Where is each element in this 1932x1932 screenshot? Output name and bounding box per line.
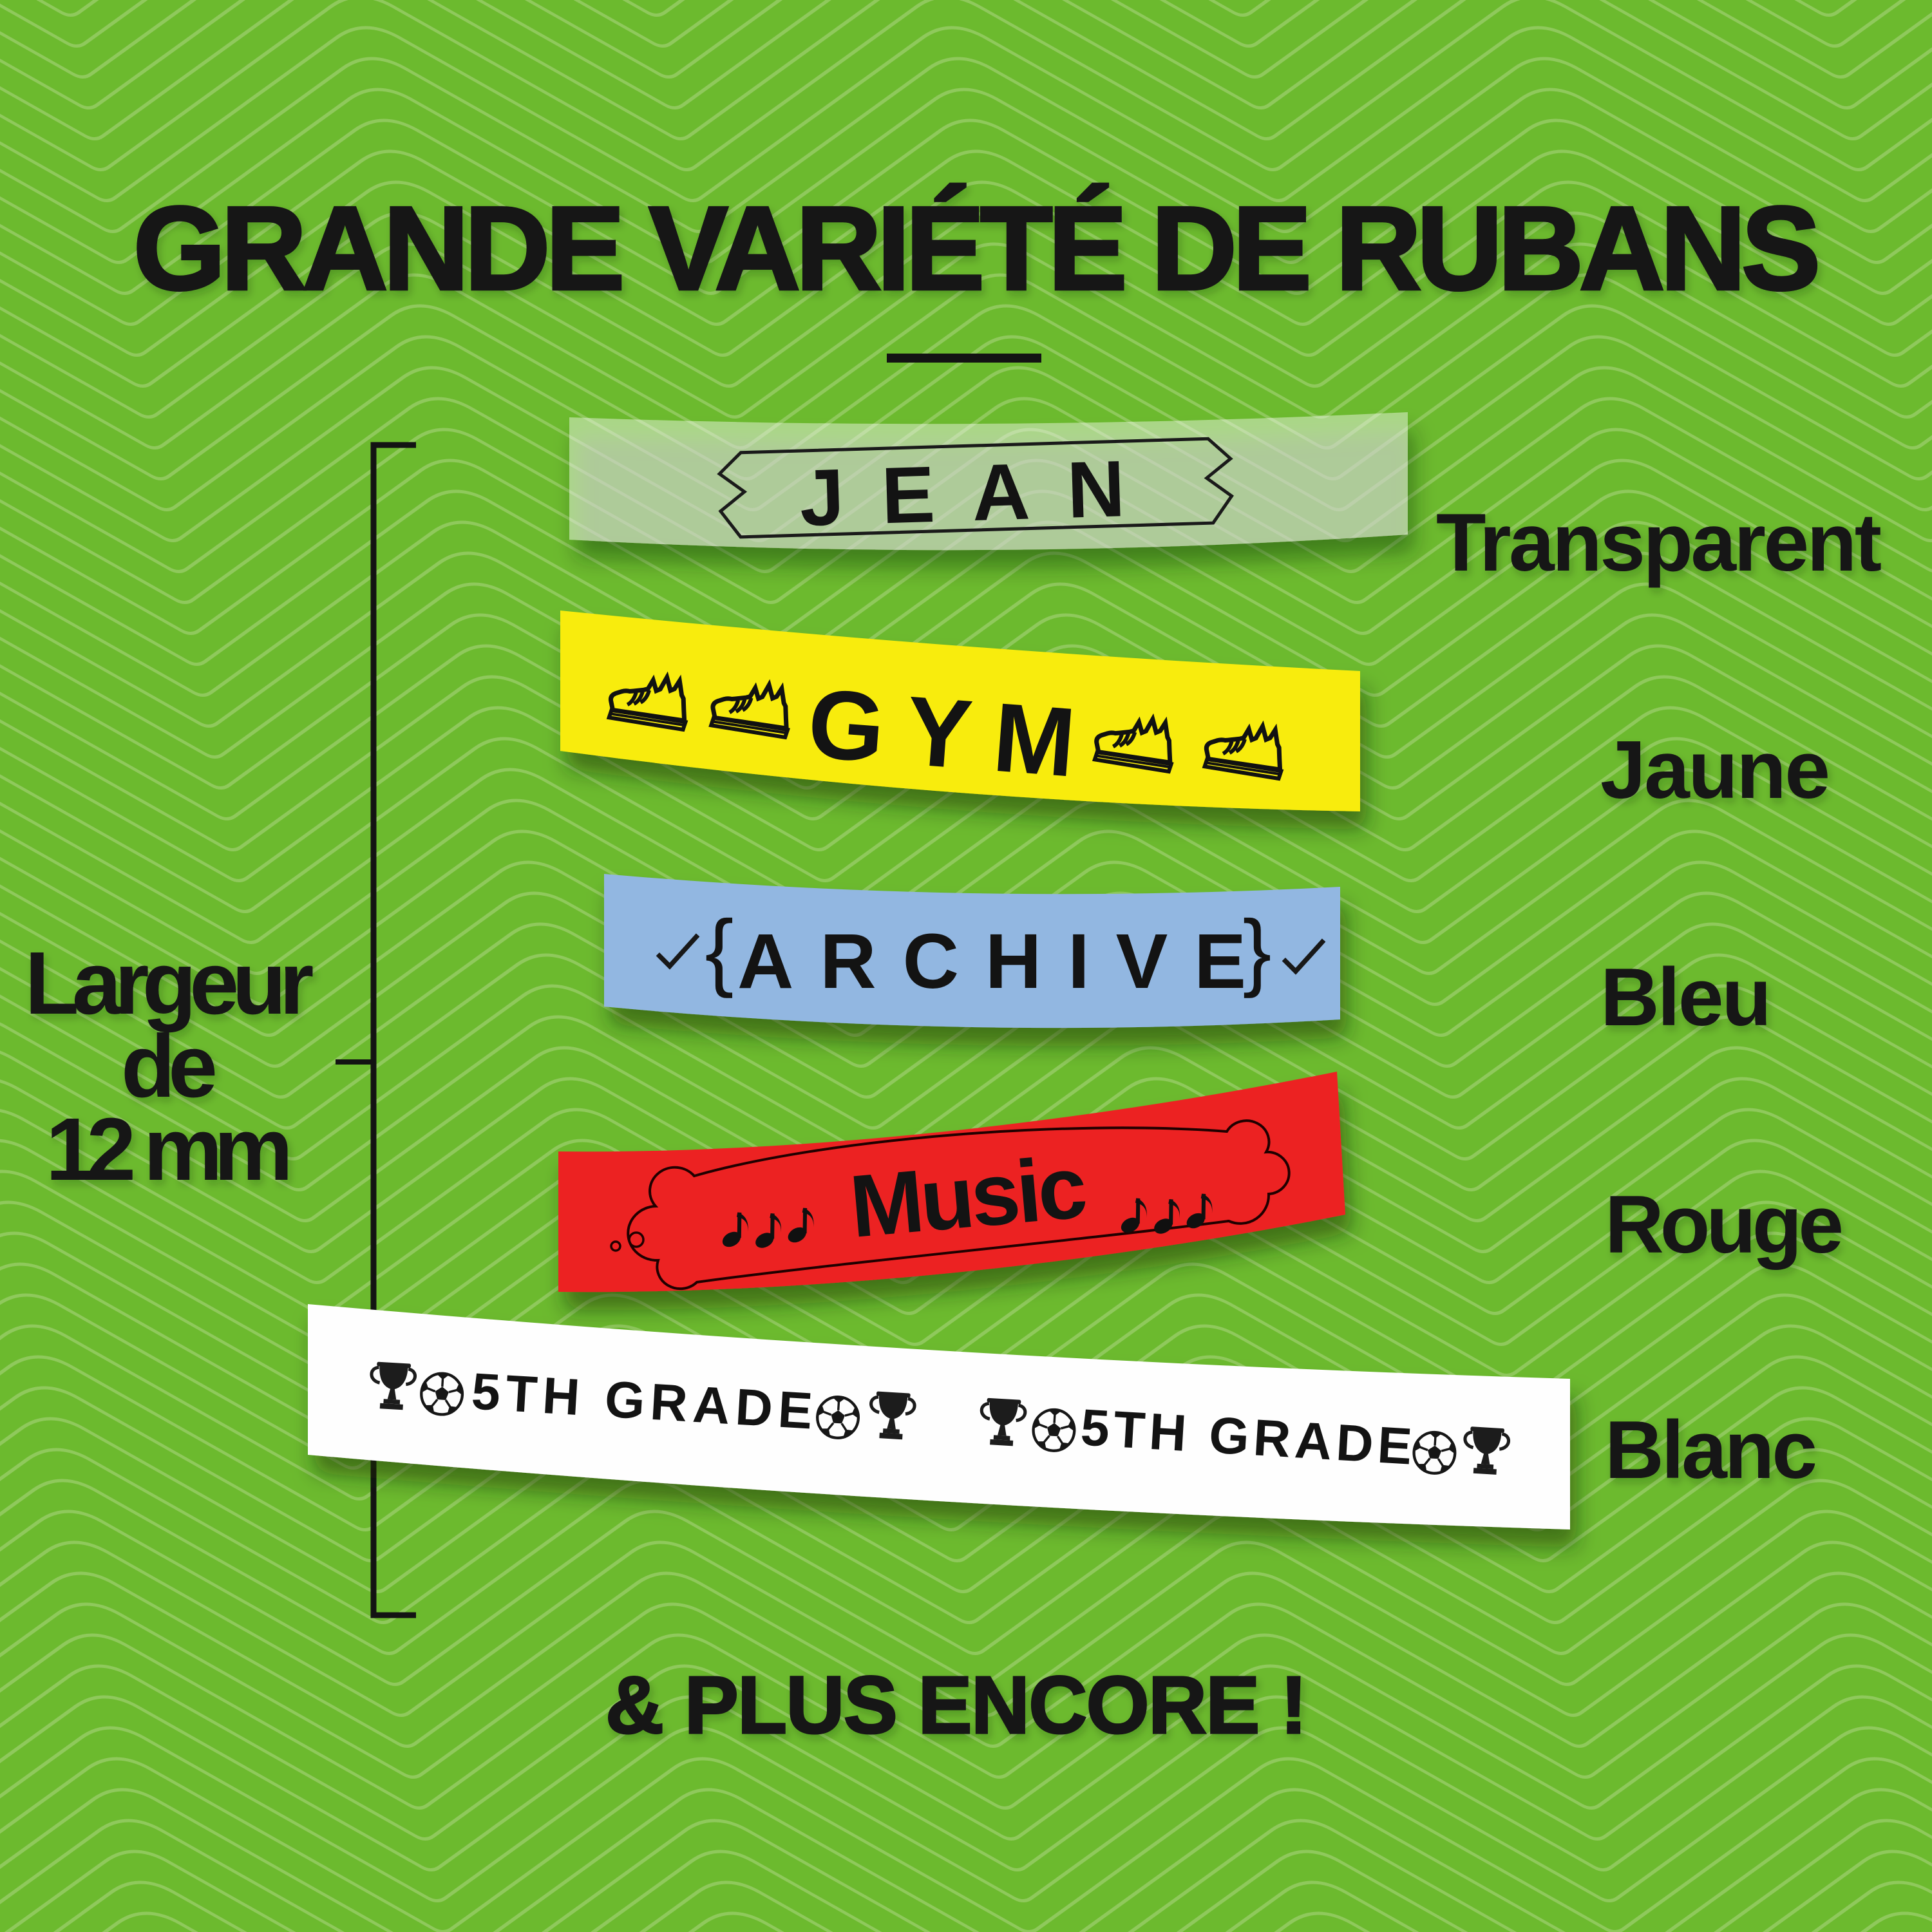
svg-text:Jaune: Jaune bbox=[1600, 724, 1830, 815]
svg-text:Bleu: Bleu bbox=[1600, 951, 1772, 1043]
svg-text:GYM: GYM bbox=[804, 668, 1079, 798]
svg-text:Transparent: Transparent bbox=[1436, 497, 1882, 588]
svg-text:GRANDE VARIÉTÉ DE RUBANS: GRANDE VARIÉTÉ DE RUBANS bbox=[133, 182, 1821, 314]
svg-text:Blanc: Blanc bbox=[1605, 1404, 1817, 1495]
svg-text:12 mm: 12 mm bbox=[46, 1100, 293, 1199]
svg-text:{: { bbox=[705, 903, 734, 999]
svg-text:Music: Music bbox=[846, 1137, 1091, 1256]
svg-text:Rouge: Rouge bbox=[1605, 1179, 1844, 1270]
svg-text:& PLUS ENCORE !: & PLUS ENCORE ! bbox=[605, 1660, 1307, 1750]
svg-text:}: } bbox=[1243, 903, 1272, 999]
